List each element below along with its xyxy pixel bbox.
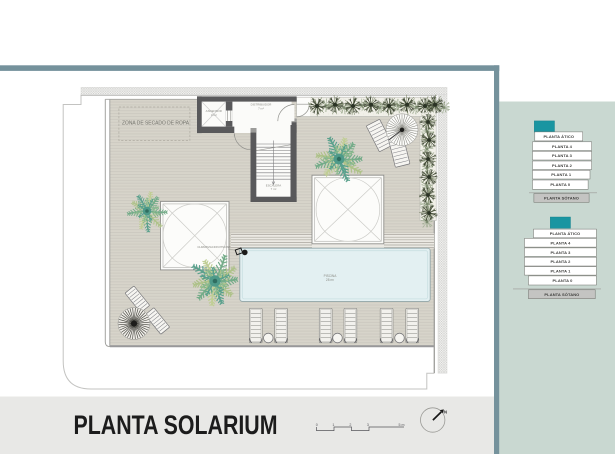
svg-text:2: 2 [349,423,351,427]
svg-text:5 m: 5 m [399,423,405,427]
svg-text:PLANTA 4: PLANTA 4 [551,240,572,245]
svg-text:N: N [444,410,447,415]
svg-text:PLANTA SÓTANO: PLANTA SÓTANO [544,292,579,297]
svg-text:7 m²: 7 m² [258,107,264,111]
svg-text:PLANTA 1: PLANTA 1 [551,172,572,177]
svg-text:ZONA DE SECADO DE ROPA: ZONA DE SECADO DE ROPA [122,120,190,126]
svg-text:PLANTA 3: PLANTA 3 [551,250,572,255]
svg-text:7 m²: 7 m² [271,187,277,191]
svg-text:28 m²: 28 m² [326,278,334,282]
svg-text:PLANTA 1: PLANTA 1 [551,269,572,274]
svg-text:PLANTA 2: PLANTA 2 [552,163,573,168]
svg-text:PLANTA 2: PLANTA 2 [551,259,572,264]
svg-text:PLANTA ÁTICO: PLANTA ÁTICO [544,134,575,139]
svg-text:CLIMATIZACION PISCINA: CLIMATIZACION PISCINA [197,245,230,249]
svg-text:1: 1 [332,423,334,427]
svg-text:PLANTA SOLARIUM: PLANTA SOLARIUM [74,410,278,440]
svg-text:PLANTA 0: PLANTA 0 [550,182,571,187]
svg-text:3: 3 [367,423,369,427]
svg-text:3 m²: 3 m² [211,113,217,117]
svg-text:PLANTA 0: PLANTA 0 [553,278,574,283]
svg-text:PLANTA SÓTANO: PLANTA SÓTANO [544,196,579,201]
svg-text:PLANTA 4: PLANTA 4 [552,144,573,149]
svg-text:PLANTA 3: PLANTA 3 [552,153,573,158]
svg-text:0: 0 [316,423,318,427]
svg-text:PLANTA ÁTICO: PLANTA ÁTICO [550,231,581,236]
